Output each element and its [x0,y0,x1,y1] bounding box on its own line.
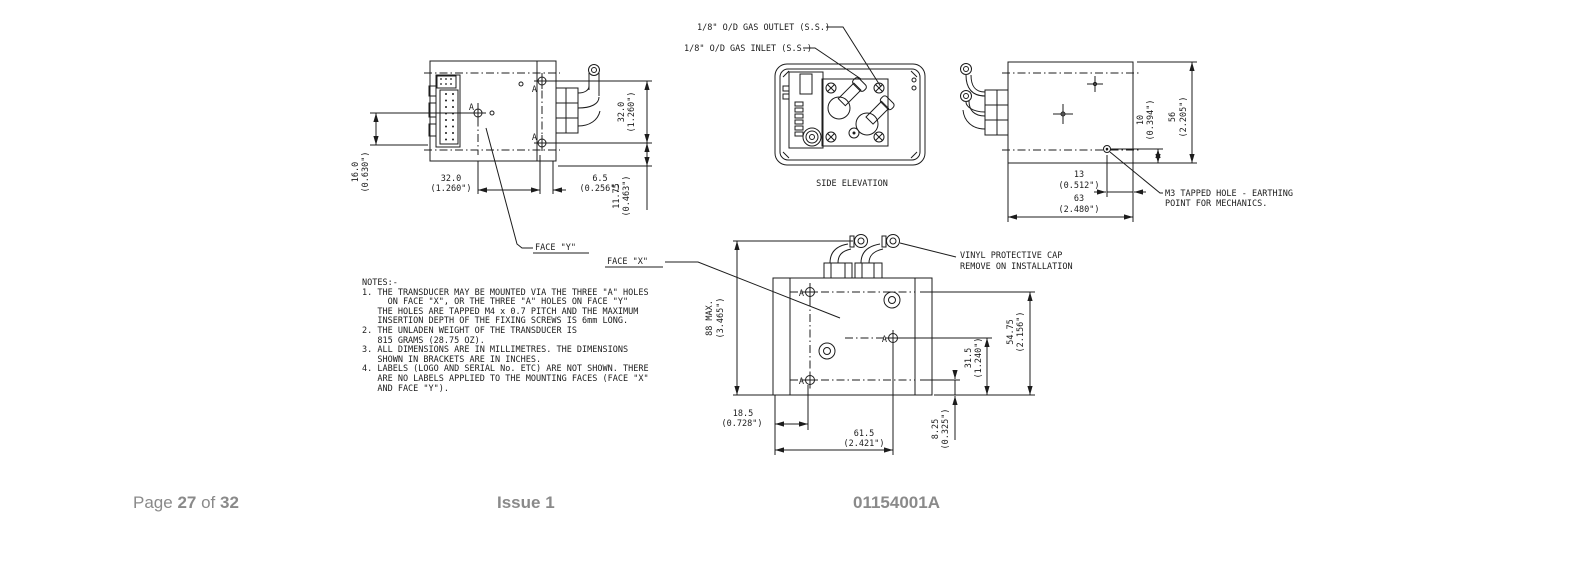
dim-185-mm: 18.5 [733,409,753,419]
dim-1175-in: (0.463") [622,176,632,217]
m3-leader [1110,152,1163,193]
hole-a-label: A [532,133,537,143]
dim-10-mm: 10 [1136,115,1146,125]
dim-16 [370,113,472,145]
left-view-tubes [556,65,600,134]
gas-outlet-leader [826,27,881,87]
dim-65-mm: 6.5 [592,174,607,184]
dim-63-in: (2.480") [1059,205,1100,215]
gas-outlet-label: 1/8" O/D GAS OUTLET (S.S.) [697,23,830,33]
notes-block: NOTES:- 1. THE TRANSDUCER MAY BE MOUNTED… [362,279,649,394]
of-label: of [201,493,215,512]
dim-185-in: (0.728") [722,419,763,429]
dim-315-mm: 31.5 [964,348,974,368]
m3-note-line1: M3 TAPPED HOLE - EARTHING [1165,189,1293,199]
right-view-tubes [961,64,1009,136]
hole-a-label: A [799,377,804,387]
crosshairs [1053,76,1103,124]
gas-inlet-label: 1/8" O/D GAS INLET (S.S.) [684,44,812,54]
technical-drawing: 1/8" O/D GAS OUTLET (S.S.) 1/8" O/D GAS … [0,0,1587,561]
gas-tube-2 [864,95,895,126]
vinyl-cap-leader [900,243,956,257]
dim-13-mm: 13 [1074,170,1084,180]
hole-a-label: A [882,335,887,345]
page-indicator: Page 27 of 32 [133,493,239,513]
dim-56-mm: 56 [1168,112,1178,122]
dim-615-in: (2.421") [844,439,885,449]
dim-1175-mm: 11.75 [612,183,622,209]
dim-32r-mm: 32.0 [617,102,627,122]
dim-13-in: (0.512") [1059,181,1100,191]
dim-32r-in: (1.260") [627,92,637,133]
dim-5475-in: (2.156") [1016,312,1026,353]
left-view [370,61,652,253]
page-label: Page [133,493,173,512]
dim-88 [733,241,853,395]
dim-63-mm: 63 [1074,194,1084,204]
document-number: 01154001A [853,493,940,513]
dim-615-mm: 61.5 [854,429,874,439]
dim-88-mm: 88 MAX. [705,300,715,336]
connector [429,75,460,147]
hole-a-label: A [532,85,537,95]
dim-315-in: (1.240") [974,338,984,379]
vinyl-note-line2: REMOVE ON INSTALLATION [960,262,1073,272]
hole-a-label: A [799,289,804,299]
issue-label: Issue 1 [497,493,555,513]
page-current: 27 [177,493,196,512]
drawing-page: { "colors": {"line": "#1c1c1c", "footer_… [0,0,1587,561]
dim-5475-mm: 54.75 [1006,319,1016,345]
face-y-leader [486,128,533,248]
m3-note-line2: POINT FOR MECHANICS. [1165,199,1267,209]
dim-16-in: (0.630") [361,152,371,193]
dim-10-in: (0.394") [1146,100,1156,141]
dim-32b-mm: 32.0 [441,174,461,184]
dim-32b-in: (1.260") [431,184,472,194]
mounting-holes [470,73,550,155]
dim-56-in: (2.205") [1179,97,1189,138]
gas-tube-1 [837,76,868,107]
vinyl-note-line1: VINYL PROTECTIVE CAP [960,251,1062,261]
notes-line: AND FACE "Y"). [362,385,649,395]
dim-16-mm: 16.0 [351,162,361,182]
side-elevation-label: SIDE ELEVATION [816,179,888,189]
dim-825-mm: 8.25 [931,419,941,439]
face-y-label: FACE "Y" [535,243,576,253]
page-total: 32 [220,493,239,512]
dim-88-in: (3.465") [716,298,726,339]
face-x-label: FACE "X" [607,257,648,267]
hole-a-label: A [469,103,474,113]
dim-825-in: (0.325") [941,409,951,450]
